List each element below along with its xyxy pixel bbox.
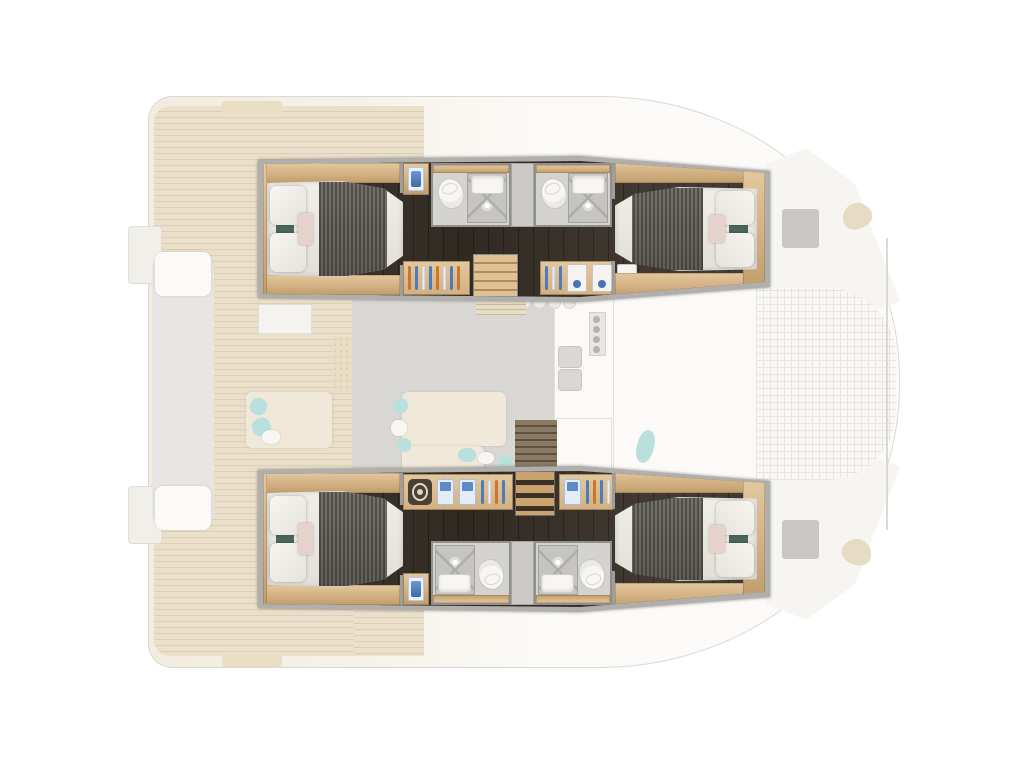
hanging-garment	[450, 266, 453, 290]
shelf-shirt	[567, 264, 587, 292]
washbasin	[572, 175, 605, 194]
washbasin-blue	[408, 577, 424, 601]
hanging-garment	[586, 480, 589, 504]
cabin-wood-rim	[263, 163, 267, 295]
cabin-wood-rim	[263, 585, 400, 605]
pillow-blush	[709, 525, 725, 554]
hanging-garment	[457, 266, 460, 290]
hanging-garment	[443, 266, 446, 290]
hanging-garment	[415, 266, 418, 290]
hull-interior-floor	[263, 161, 765, 297]
trampoline	[756, 288, 896, 480]
hanging-garment	[607, 480, 610, 504]
chaise-pillow-white	[262, 430, 280, 444]
bed-port-aft	[267, 181, 403, 277]
staircase-port	[473, 254, 518, 297]
bed-blanket	[632, 498, 703, 580]
washbasin	[438, 574, 471, 593]
galley-sink	[558, 369, 582, 391]
hanging-garment	[408, 266, 411, 290]
toilet	[575, 556, 609, 593]
sofa-pillow-teal	[393, 398, 408, 413]
hanging-garment	[495, 480, 498, 504]
stairs-landing-port	[476, 300, 526, 315]
bed-starboard-aft	[267, 491, 403, 587]
bathroom-counter	[536, 165, 610, 173]
washbasin-cabinet	[403, 573, 429, 605]
hanging-garment	[593, 480, 596, 504]
bow-hatch-bottom	[782, 520, 819, 559]
washbasin-cabinet	[403, 163, 429, 195]
bathroom-port-fwd	[534, 163, 612, 227]
bathroom-starboard-aft	[431, 541, 511, 605]
bed-pillows	[714, 501, 754, 577]
bathroom-divider	[511, 163, 534, 227]
bed-pillows	[270, 496, 308, 582]
cabin-wood-rim	[263, 163, 400, 183]
hanger-rack	[408, 261, 460, 295]
deck-locker-top	[222, 101, 282, 114]
bed-blanket	[632, 188, 703, 270]
folded-shirt	[437, 479, 454, 505]
hanger-rack	[586, 474, 610, 510]
folded-shirt	[459, 479, 476, 505]
pillow-blush	[298, 523, 313, 556]
hanging-garment	[436, 266, 439, 290]
hanging-garment	[545, 266, 548, 290]
stern-bench	[152, 258, 214, 524]
floor-pillow-white	[478, 452, 494, 464]
bathroom-counter	[433, 595, 509, 603]
pillow-blush	[298, 213, 313, 246]
bed-pillows	[270, 186, 308, 272]
hanger-rack	[481, 474, 505, 510]
cabin-wood-rim	[263, 473, 267, 605]
galley-sink	[558, 346, 582, 368]
saloon-sofa	[402, 392, 506, 446]
staircase-starboard	[515, 471, 555, 516]
cabin-wood-rim	[263, 473, 400, 493]
bathroom-starboard-fwd	[534, 541, 612, 605]
hull-interior-floor	[263, 471, 765, 607]
bathroom-counter	[433, 165, 509, 173]
bathroom-port-aft	[431, 163, 511, 227]
ship-wheel-icon	[408, 479, 432, 505]
bow-hatch-top	[782, 209, 819, 248]
hanging-garment	[481, 480, 484, 504]
hanging-garment	[552, 266, 555, 290]
hanging-garment	[422, 266, 425, 290]
wardrobe-port-fwd	[540, 261, 612, 295]
washbasin	[471, 175, 504, 194]
stove-burner	[593, 316, 600, 323]
floor-pillow-teal	[458, 448, 476, 462]
hanging-garment	[429, 266, 432, 290]
bathroom-counter	[536, 595, 610, 603]
bathroom-divider	[511, 541, 534, 605]
stairs-landing-starboard	[515, 420, 557, 468]
cabin-wood-rim	[263, 275, 400, 295]
wardrobe-port-aft	[403, 261, 470, 295]
wardrobe-starboard-aft	[403, 474, 513, 510]
wardrobe-starboard-fwd	[559, 474, 613, 510]
stern-bench-cap-bottom	[155, 486, 211, 530]
bed-starboard-fwd	[615, 497, 757, 581]
pillow-blush	[709, 215, 725, 244]
hanging-garment	[488, 480, 491, 504]
shelf-shirt	[592, 264, 612, 292]
deck-plan	[0, 0, 1024, 768]
bed-blanket	[319, 492, 387, 586]
bow-crossbeam	[886, 238, 888, 530]
washbasin	[541, 574, 574, 593]
starboard-hull	[258, 466, 770, 612]
washbasin-blue	[408, 167, 424, 191]
galley-cabinet	[556, 418, 612, 470]
hanging-garment	[559, 266, 562, 290]
stove-burner	[593, 326, 600, 333]
bed-port-fwd	[615, 187, 757, 271]
sofa-pillow-white	[391, 420, 407, 436]
hanging-garment	[502, 480, 505, 504]
deck-locker-bottom	[222, 654, 282, 667]
toilet	[537, 175, 571, 212]
bed-blanket	[319, 182, 387, 276]
port-hull	[258, 156, 770, 302]
stove-burner	[593, 346, 600, 353]
nav-desk	[258, 304, 312, 334]
hanging-garment	[600, 480, 603, 504]
toilet	[474, 556, 508, 593]
folded-shirt	[564, 479, 581, 505]
toilet	[434, 175, 468, 212]
stove-burner	[593, 336, 600, 343]
hanger-rack	[545, 261, 562, 295]
stern-bench-cap-top	[155, 252, 211, 296]
sofa-pillow-teal	[397, 438, 411, 452]
bed-pillows	[714, 191, 754, 267]
